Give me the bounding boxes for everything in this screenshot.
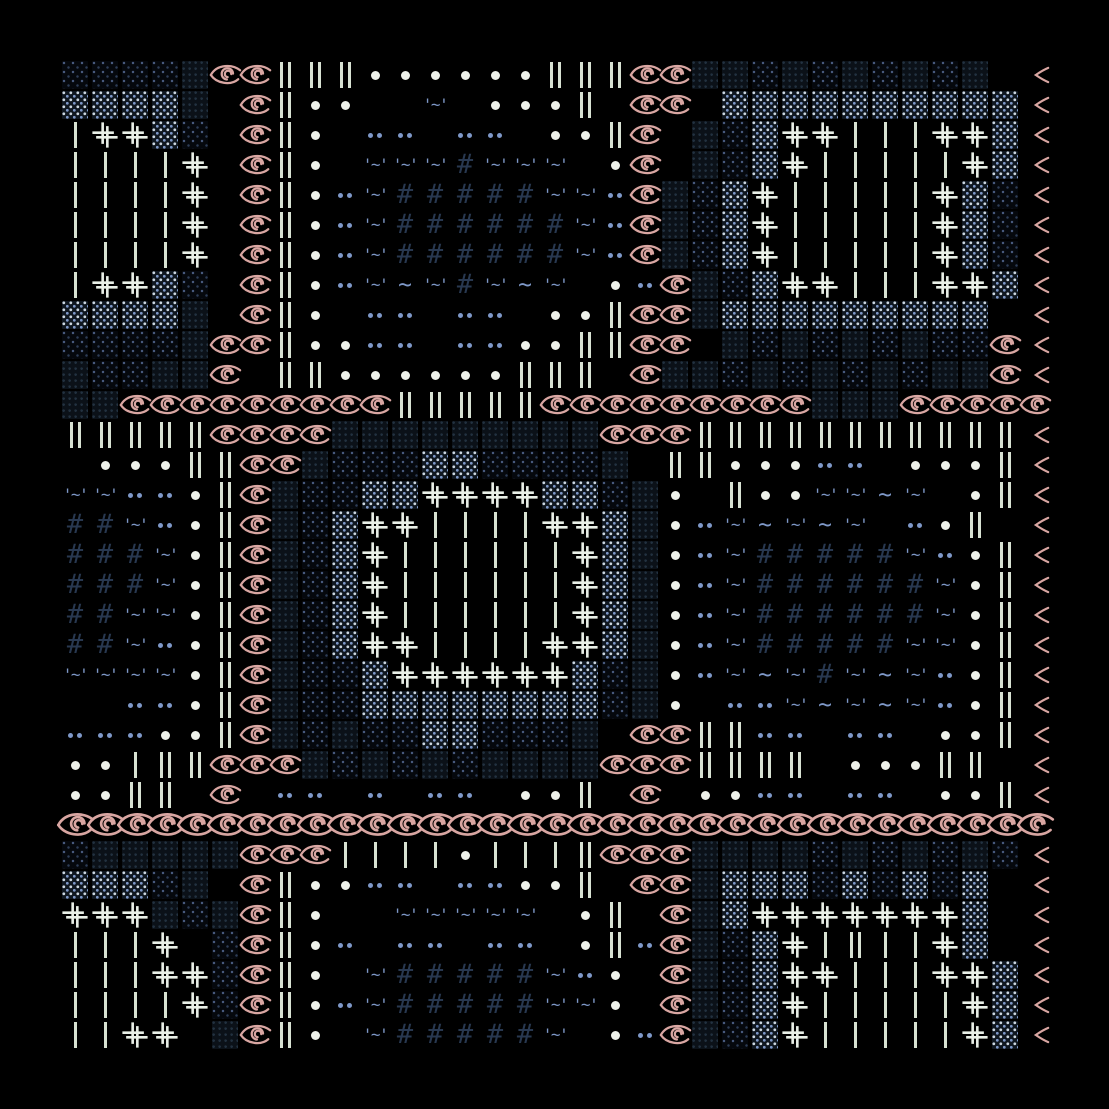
dither-dark-block [900,330,930,360]
bar-glyph [450,540,480,570]
empty-cell [990,930,1020,960]
dither-sparse-block [570,450,600,480]
double-bar-glyph [570,870,600,900]
white-dot [930,780,960,810]
eye-icon [630,60,660,90]
dither-dark-block [300,750,330,780]
empty-cell [390,90,420,120]
white-dot [540,870,570,900]
double-plus-glyph [390,660,420,690]
empty-cell [630,990,660,1020]
empty-cell [360,900,390,930]
dither-sparse-block [810,840,840,870]
glyph-grid: '~''~''~''~'#'~''~''~''~'#####'~''~''~'#… [60,60,1050,1050]
eye-icon [600,750,630,780]
white-dot [600,150,630,180]
double-bar-glyph [600,60,630,90]
dither-bright-block [150,120,180,150]
double-bar-glyph [390,390,420,420]
eye-tip-icon [1020,960,1050,990]
double-plus-glyph [570,510,600,540]
bar-glyph [150,240,180,270]
dither-dark-block [420,750,450,780]
dither-bright-block [840,90,870,120]
double-plus-glyph [750,180,780,210]
quote-tilde-glyph: '~' [360,180,390,210]
dither-sparse-block [60,330,90,360]
eye-icon [660,930,690,960]
dither-bright-block [960,210,990,240]
empty-cell [180,780,210,810]
empty-cell [330,780,360,810]
quote-tilde-glyph: '~' [450,900,480,930]
eye-icon [240,900,270,930]
dither-dark-block [480,420,510,450]
double-bar-glyph [210,630,240,660]
dither-bright-block [720,300,750,330]
bar-glyph [420,840,450,870]
bar-glyph [390,540,420,570]
double-plus-glyph [930,930,960,960]
empty-cell [630,900,660,930]
bar-glyph [480,600,510,630]
dither-dark-block [690,900,720,930]
empty-cell [210,270,240,300]
eye-icon [240,150,270,180]
double-bar-glyph [270,120,300,150]
dither-sparse-block [120,330,150,360]
white-dot [180,600,210,630]
hash-glyph: # [510,180,540,210]
bar-glyph [840,210,870,240]
double-bar-glyph [990,600,1020,630]
double-plus-glyph [780,150,810,180]
dither-sparse-block [330,450,360,480]
eye-tip-icon [1020,210,1050,240]
dither-sparse-block [900,360,930,390]
hash-glyph: # [540,240,570,270]
bar-glyph [420,510,450,540]
double-bar-glyph [720,720,750,750]
white-dot [600,1020,630,1050]
dither-bright-block [870,90,900,120]
eye-icon [240,630,270,660]
eye-icon [210,750,240,780]
hash-glyph: # [480,1020,510,1050]
white-dot [960,660,990,690]
double-bar-glyph [150,420,180,450]
dither-dark-block [750,360,780,390]
double-plus-glyph [780,900,810,930]
double-plus-glyph [150,930,180,960]
dither-dark-block [840,330,870,360]
double-bar-glyph [180,750,210,780]
eye-tip-icon [1020,270,1050,300]
dither-bright-block [600,510,630,540]
hash-glyph: # [450,270,480,300]
eye-tip-icon [1020,930,1050,960]
eye-tip-icon [1020,1020,1050,1050]
blue-dot-pair [360,330,390,360]
blue-dot-pair [330,180,360,210]
bar-glyph [420,630,450,660]
double-bar-glyph [690,720,720,750]
dither-dark-block [660,180,690,210]
dither-sparse-block [750,60,780,90]
dither-sparse-block [960,330,990,360]
double-plus-glyph [360,570,390,600]
bar-glyph [60,960,90,990]
tilde-glyph: ~ [810,510,840,540]
quote-tilde-glyph: '~' [900,480,930,510]
dither-bright-block [60,300,90,330]
eye-icon [900,390,930,420]
dither-sparse-block [990,240,1020,270]
dither-sparse-block [390,450,420,480]
double-bar-glyph [180,450,210,480]
dither-sparse-block [990,210,1020,240]
hash-glyph: # [870,570,900,600]
eye-tip-icon [1020,510,1050,540]
white-dot [660,690,690,720]
double-bar-glyph [330,60,360,90]
dither-dark-block [690,120,720,150]
empty-cell [210,150,240,180]
blue-dot-pair [390,330,420,360]
dither-dark-block [270,720,300,750]
quote-tilde-glyph: '~' [60,480,90,510]
double-bar-glyph [270,300,300,330]
blue-dot-pair [480,870,510,900]
dither-sparse-block [210,930,240,960]
bar-glyph [120,210,150,240]
blue-dot-pair [510,930,540,960]
white-dot [180,690,210,720]
eye-icon [630,420,660,450]
quote-tilde-glyph: '~' [720,540,750,570]
double-plus-glyph [960,150,990,180]
eye-icon [120,390,150,420]
empty-cell [210,210,240,240]
quote-tilde-glyph: '~' [780,690,810,720]
dither-sparse-block [600,660,630,690]
eye-icon [1020,390,1050,420]
white-dot [510,780,540,810]
double-bar-glyph [570,90,600,120]
empty-cell [180,930,210,960]
white-dot [960,480,990,510]
double-plus-glyph [420,480,450,510]
blue-dot-pair [330,930,360,960]
quote-tilde-glyph: '~' [120,600,150,630]
blue-dot-pair [690,660,720,690]
white-dot [960,600,990,630]
dither-bright-block [570,660,600,690]
quote-tilde-glyph: '~' [900,660,930,690]
hash-glyph: # [480,180,510,210]
quote-tilde-glyph: '~' [480,150,510,180]
quote-tilde-glyph: '~' [120,630,150,660]
dither-bright-block [960,240,990,270]
blue-dot-pair [360,120,390,150]
double-plus-glyph [930,180,960,210]
blue-dot-pair [450,330,480,360]
double-bar-glyph [960,420,990,450]
dither-dark-block [840,840,870,870]
double-bar-glyph [210,510,240,540]
empty-cell [570,1020,600,1050]
empty-cell [660,120,690,150]
double-plus-glyph [420,660,450,690]
dither-sparse-block [180,900,210,930]
blue-dot-pair [330,990,360,1020]
quote-tilde-glyph: '~' [540,180,570,210]
double-plus-glyph [180,990,210,1020]
dither-bright-block [600,600,630,630]
white-dot [690,780,720,810]
dither-sparse-block [720,150,750,180]
quote-tilde-glyph: '~' [570,240,600,270]
double-bar-glyph [270,90,300,120]
hash-glyph: # [480,210,510,240]
double-bar-glyph [210,570,240,600]
dither-dark-block [630,510,660,540]
white-dot [390,60,420,90]
double-plus-glyph [180,240,210,270]
hash-glyph: # [840,600,870,630]
dither-dark-block [690,150,720,180]
white-dot [930,720,960,750]
dither-dark-block [390,420,420,450]
bar-glyph [870,990,900,1020]
double-plus-glyph [570,540,600,570]
empty-cell [600,780,630,810]
blue-dot-pair [480,120,510,150]
dither-bright-block [600,540,630,570]
dither-bright-block [960,900,990,930]
quote-tilde-glyph: '~' [60,660,90,690]
hash-glyph: # [420,1020,450,1050]
double-bar-glyph [210,480,240,510]
hash-glyph: # [480,960,510,990]
double-bar-glyph [270,150,300,180]
blue-dot-pair [840,450,870,480]
white-dot [300,330,330,360]
quote-tilde-glyph: '~' [570,990,600,1020]
eye-icon [660,840,690,870]
double-bar-glyph [990,570,1020,600]
quote-tilde-glyph: '~' [150,570,180,600]
dither-bright-block [420,450,450,480]
double-bar-glyph [840,420,870,450]
eye-icon [660,300,690,330]
dither-bright-block [450,720,480,750]
dither-sparse-block [990,180,1020,210]
eye-icon [240,600,270,630]
blue-dot-pair [360,300,390,330]
empty-cell [330,300,360,330]
bar-glyph [60,150,90,180]
empty-cell [930,480,960,510]
dither-dark-block [210,900,240,930]
white-dot [300,270,330,300]
hash-glyph: # [450,180,480,210]
white-dot [300,240,330,270]
tilde-glyph: ~ [750,510,780,540]
eye-icon [240,330,270,360]
quote-tilde-glyph: '~' [120,660,150,690]
blue-dot-pair [330,240,360,270]
double-plus-glyph [150,1020,180,1050]
bar-glyph [390,840,420,870]
double-plus-glyph [180,210,210,240]
double-plus-glyph [360,540,390,570]
dither-dark-block [630,600,660,630]
white-dot [540,300,570,330]
white-dot [480,60,510,90]
double-plus-glyph [750,210,780,240]
dither-dark-block [330,420,360,450]
quote-tilde-glyph: '~' [360,990,390,1020]
double-bar-glyph [480,390,510,420]
double-bar-glyph [180,420,210,450]
double-plus-glyph [180,150,210,180]
dither-sparse-block [510,450,540,480]
quote-tilde-glyph: '~' [510,150,540,180]
double-bar-glyph [570,360,600,390]
empty-cell [990,60,1020,90]
dither-dark-block [570,750,600,780]
dither-dark-block [180,60,210,90]
eye-icon [240,390,270,420]
double-plus-glyph [930,900,960,930]
double-bar-glyph [990,450,1020,480]
white-dot [360,60,390,90]
dither-bright-block [540,480,570,510]
eye-icon [660,60,690,90]
double-plus-glyph [750,900,780,930]
dither-dark-block [960,840,990,870]
white-dot [960,780,990,810]
eye-icon [600,390,630,420]
eye-icon [240,840,270,870]
double-bar-glyph [210,540,240,570]
tilde-glyph: ~ [810,690,840,720]
dither-bright-block [780,870,810,900]
dither-bright-block [780,300,810,330]
empty-cell [210,870,240,900]
bar-glyph [90,1020,120,1050]
dither-bright-block [960,930,990,960]
eye-icon [630,240,660,270]
empty-cell [420,300,450,330]
blue-dot-pair [780,720,810,750]
double-bar-glyph [690,450,720,480]
dither-dark-block [180,300,210,330]
dither-bright-block [150,270,180,300]
bar-glyph [840,270,870,300]
double-plus-glyph [780,930,810,960]
white-dot [960,570,990,600]
eye-icon [240,540,270,570]
empty-cell [690,90,720,120]
eye-icon [630,780,660,810]
bar-glyph [510,600,540,630]
empty-cell [600,720,630,750]
double-plus-glyph [120,1020,150,1050]
dither-dark-block [690,60,720,90]
glyph-quilt-canvas: '~''~''~''~'#'~''~''~''~'#####'~''~''~'#… [0,0,1109,1109]
quote-tilde-glyph: '~' [720,630,750,660]
white-dot [510,60,540,90]
dither-bright-block [60,870,90,900]
quote-tilde-glyph: '~' [780,510,810,540]
dither-sparse-block [870,330,900,360]
dither-dark-block [90,390,120,420]
eye-large-icon [1020,810,1050,840]
empty-cell [210,240,240,270]
hash-glyph: # [900,600,930,630]
bar-glyph [840,180,870,210]
white-dot [960,450,990,480]
dither-sparse-block [720,990,750,1020]
white-dot [150,450,180,480]
hash-glyph: # [750,570,780,600]
dither-dark-block [270,600,300,630]
dither-bright-block [720,180,750,210]
bar-glyph [420,570,450,600]
dither-bright-block [750,300,780,330]
quote-tilde-glyph: '~' [570,180,600,210]
dither-dark-block [750,840,780,870]
dither-dark-block [630,540,660,570]
bar-glyph [870,120,900,150]
dither-bright-block [390,480,420,510]
dither-bright-block [360,480,390,510]
bar-glyph [450,510,480,540]
empty-cell [810,750,840,780]
bar-glyph [450,630,480,660]
dither-dark-block [690,870,720,900]
blue-dot-pair [150,480,180,510]
quote-tilde-glyph: '~' [900,690,930,720]
dither-dark-block [150,900,180,930]
hash-glyph: # [840,630,870,660]
hash-glyph: # [450,990,480,1020]
double-plus-glyph [810,960,840,990]
eye-tip-icon [1020,60,1050,90]
eye-icon [630,210,660,240]
double-bar-glyph [660,450,690,480]
double-bar-glyph [600,900,630,930]
bar-glyph [900,240,930,270]
dither-sparse-block [120,360,150,390]
empty-cell [690,330,720,360]
dither-bright-block [930,90,960,120]
empty-cell [510,300,540,330]
empty-cell [570,270,600,300]
dither-sparse-block [930,870,960,900]
blue-dot-pair [780,780,810,810]
dither-dark-block [630,570,660,600]
double-bar-glyph [270,360,300,390]
white-dot [60,750,90,780]
double-plus-glyph [780,960,810,990]
hash-glyph: # [780,630,810,660]
quote-tilde-glyph: '~' [840,660,870,690]
white-dot [180,510,210,540]
bar-glyph [450,600,480,630]
